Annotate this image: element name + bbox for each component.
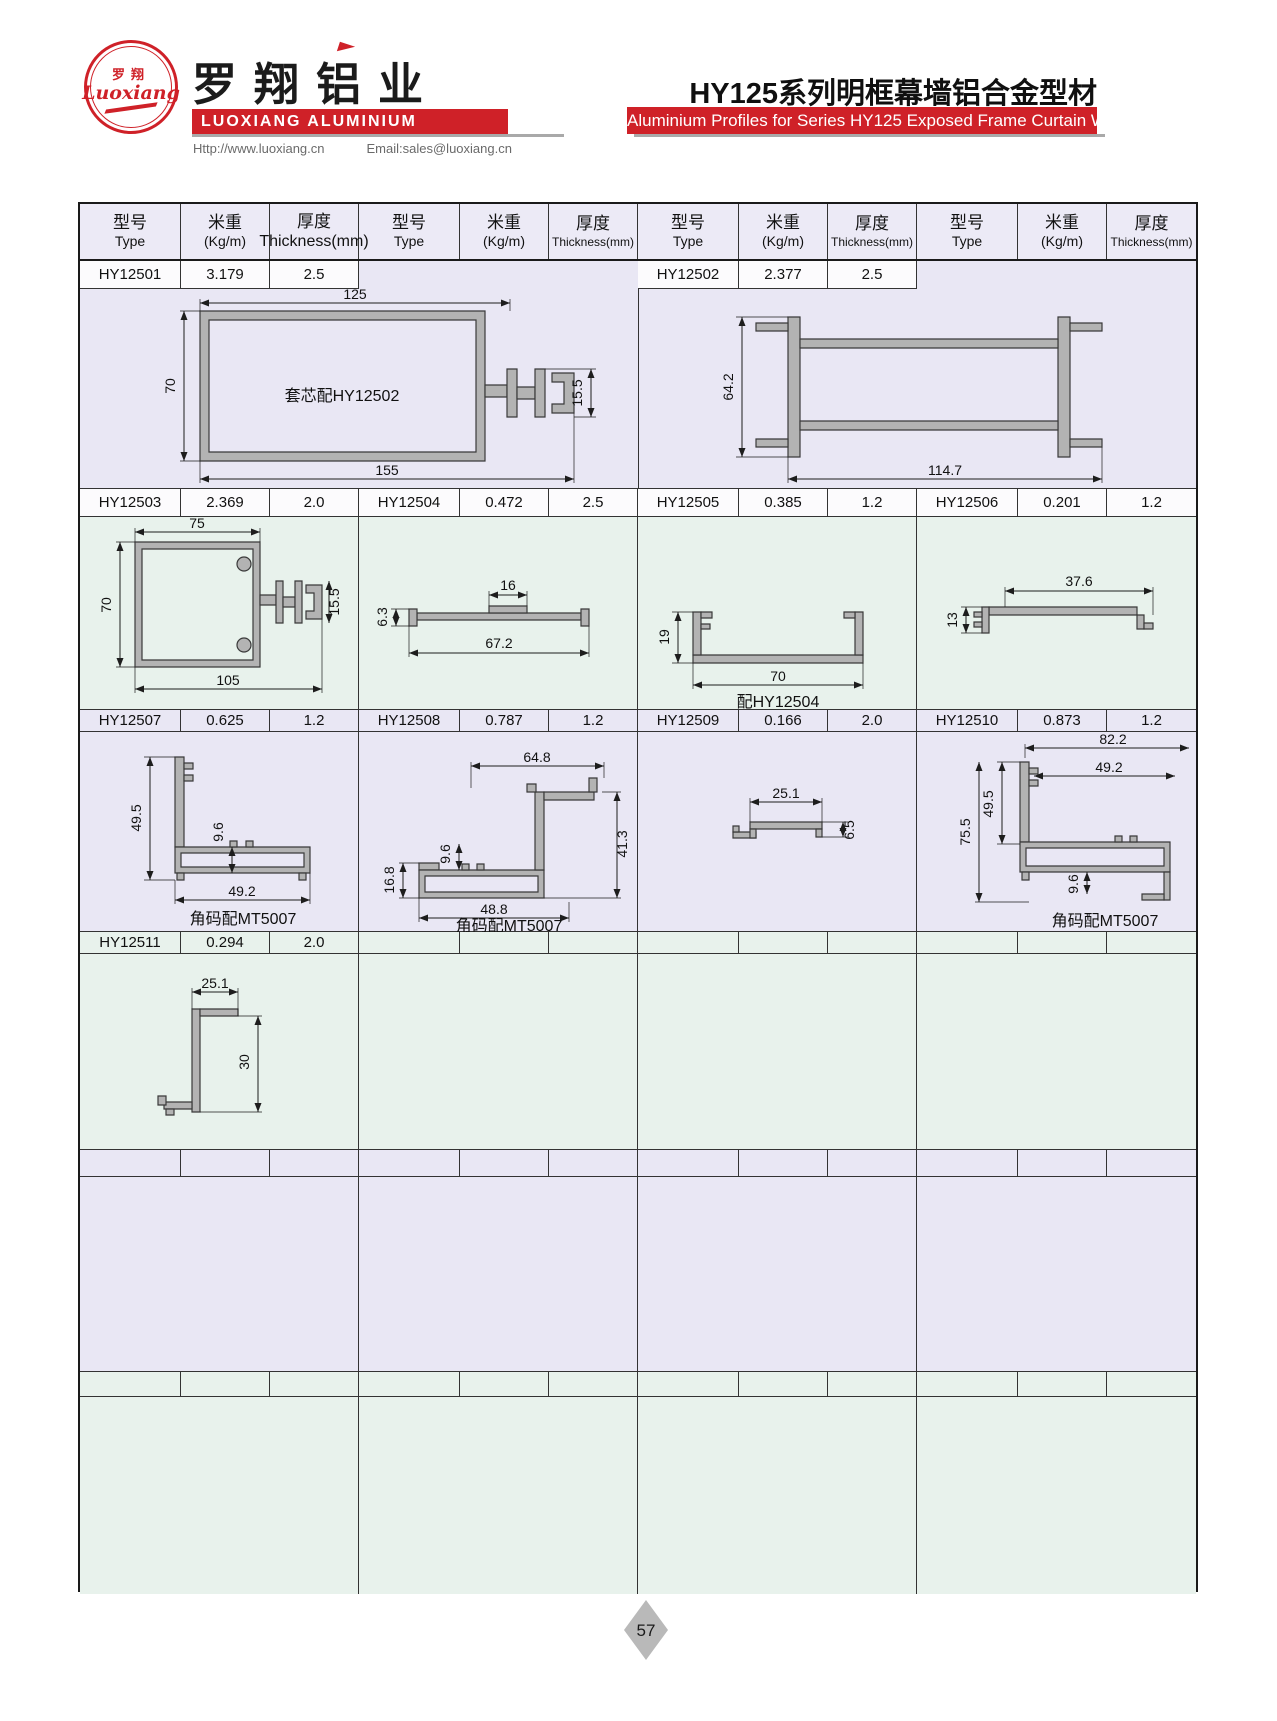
empty-drawing-cell xyxy=(80,1397,359,1594)
drawing-row-4: 25.1 30 xyxy=(80,954,1196,1150)
empty-cell xyxy=(80,1150,181,1176)
header-weight: 米重(Kg/m) xyxy=(1018,204,1107,259)
type-cell: HY12510 xyxy=(917,710,1018,731)
header-thickness: 厚度Thickness(mm) xyxy=(549,204,638,259)
dim-label: 15.5 xyxy=(569,379,585,406)
empty-cell xyxy=(1107,932,1196,953)
dim-label: 25.1 xyxy=(201,975,228,991)
row-hy12501-hy12502: HY12501 3.179 2.5 HY12502 2.377 2.5 xyxy=(80,261,1196,489)
profile-shape xyxy=(419,870,544,898)
header-thickness: 厚度Thickness(mm) xyxy=(270,204,359,259)
empty-cell xyxy=(270,1150,359,1176)
weight-cell: 0.294 xyxy=(181,932,270,953)
empty-drawing-cell xyxy=(638,1397,917,1594)
drawing-hy12511: 25.1 30 xyxy=(80,954,359,1150)
empty-cell xyxy=(460,1150,549,1176)
empty-drawing-cell xyxy=(917,1397,1196,1594)
type-cell: HY12506 xyxy=(917,489,1018,516)
header-weight: 米重(Kg/m) xyxy=(181,204,270,259)
empty-drawing-cell xyxy=(917,1177,1196,1371)
drawing-hy12509: 25.1 6.5 xyxy=(638,732,917,932)
weight-cell: 0.873 xyxy=(1018,710,1107,731)
logo-chinese: 罗翔 xyxy=(112,64,150,83)
dimension-lines: 25.1 6.5 xyxy=(750,785,857,840)
dim-label: 70 xyxy=(770,668,786,684)
empty-cell xyxy=(828,1372,917,1396)
dim-label: 75.5 xyxy=(957,818,973,845)
dim-label: 9.6 xyxy=(210,822,226,842)
drawing-hy12507: 49.5 9.6 49.2 角码配MT5007 xyxy=(80,732,359,932)
profile-note: 角码配MT5007 xyxy=(456,917,563,932)
thickness-cell: 1.2 xyxy=(1107,710,1196,731)
dim-label: 9.6 xyxy=(1065,874,1081,894)
brand-logo: 罗翔 Luoxiang xyxy=(84,40,178,134)
type-cell: HY12503 xyxy=(80,489,181,516)
dim-label: 49.2 xyxy=(1095,759,1122,775)
dim-label: 155 xyxy=(375,462,399,478)
empty-cell xyxy=(739,932,828,953)
empty-cell xyxy=(549,932,638,953)
profile-shape xyxy=(417,613,581,620)
series-title-english: Aluminium Profiles for Series HY125 Expo… xyxy=(627,107,1097,134)
thickness-cell: 2.0 xyxy=(828,710,917,731)
thickness-cell: 1.2 xyxy=(549,710,638,731)
empty-drawing-cell xyxy=(359,1397,638,1594)
dim-label: 125 xyxy=(343,289,367,302)
type-cell: HY12501 xyxy=(80,261,181,289)
dim-label: 114.7 xyxy=(928,462,962,478)
dim-label: 37.6 xyxy=(1065,573,1092,589)
empty-cell xyxy=(917,932,1018,953)
strip-hy12501: HY12501 3.179 2.5 xyxy=(80,261,359,289)
catalog-page: 罗翔 Luoxiang 罗翔铝业 LUOXIANG ALUMINIUM Http… xyxy=(0,0,1277,1721)
empty-drawing-cell xyxy=(80,1177,359,1371)
profile-shape xyxy=(200,311,485,461)
strip-hy12502: HY12502 2.377 2.5 xyxy=(638,261,917,289)
profile-table: 型号Type 米重(Kg/m) 厚度Thickness(mm) 型号Type 米… xyxy=(78,202,1198,1592)
title-shadow-line xyxy=(634,134,1105,137)
dim-label: 16 xyxy=(500,577,516,593)
empty-cell xyxy=(549,1150,638,1176)
header-type: 型号Type xyxy=(917,204,1018,259)
strip-row-6 xyxy=(80,1372,1196,1397)
profile-shape xyxy=(750,822,822,829)
type-cell: HY12511 xyxy=(80,932,181,953)
dim-label: 30 xyxy=(236,1054,252,1070)
dim-label: 105 xyxy=(216,672,240,688)
dim-label: 82.2 xyxy=(1099,732,1126,747)
empty-cell xyxy=(1018,932,1107,953)
empty-cell xyxy=(917,1150,1018,1176)
drawing-hy12503: 75 70 15.5 105 xyxy=(80,517,359,710)
type-cell: HY12504 xyxy=(359,489,460,516)
cell-hy12507: 49.5 9.6 49.2 角码配MT5007 xyxy=(80,732,359,931)
thickness-cell: 1.2 xyxy=(1107,489,1196,516)
dimension-lines: 25.1 30 xyxy=(192,975,262,1112)
thickness-cell: 2.5 xyxy=(270,261,359,289)
empty-cell xyxy=(638,932,739,953)
dim-label: 67.2 xyxy=(485,635,512,651)
dimension-lines: 82.2 49.2 49.5 75.5 9.6 xyxy=(957,732,1189,902)
weight-cell: 0.201 xyxy=(1018,489,1107,516)
cell-hy12504: 6.3 16 67.2 xyxy=(359,517,638,709)
header-type: 型号Type xyxy=(80,204,181,259)
thickness-cell: 2.0 xyxy=(270,932,359,953)
dim-label: 75 xyxy=(189,517,205,531)
brand-contact: Http://www.luoxiang.cn Email:sales@luoxi… xyxy=(193,141,512,156)
email-link[interactable]: Email:sales@luoxiang.cn xyxy=(367,141,512,156)
thickness-cell: 2.5 xyxy=(828,261,917,289)
website-link[interactable]: Http://www.luoxiang.cn xyxy=(193,141,325,156)
dimension-lines: 19 70 xyxy=(656,612,863,689)
header-thickness: 厚度Thickness(mm) xyxy=(828,204,917,259)
strip-row-2: HY12503 2.369 2.0 HY12504 0.472 2.5 HY12… xyxy=(80,489,1196,517)
empty-cell xyxy=(828,932,917,953)
empty-cell xyxy=(1107,1150,1196,1176)
weight-cell: 3.179 xyxy=(181,261,270,289)
table-header-row: 型号Type 米重(Kg/m) 厚度Thickness(mm) 型号Type 米… xyxy=(80,204,1196,261)
empty-drawing-cell xyxy=(359,1177,638,1371)
drawing-row-2: 75 70 15.5 105 xyxy=(80,517,1196,710)
profile-shape xyxy=(1020,762,1029,842)
drawing-hy12505: 19 70 配HY12504 xyxy=(638,517,917,710)
type-cell: HY12508 xyxy=(359,710,460,731)
strip-row-3: HY12507 0.625 1.2 HY12508 0.787 1.2 HY12… xyxy=(80,710,1196,732)
cell-hy12505: 19 70 配HY12504 xyxy=(638,517,917,709)
profile-note: 套芯配HY12502 xyxy=(285,387,400,405)
dim-label: 16.8 xyxy=(381,866,397,893)
profile-shape xyxy=(788,317,800,457)
profile-note: 配HY12504 xyxy=(737,693,820,710)
profile-note: 角码配MT5007 xyxy=(190,910,297,928)
brand-shadow-line xyxy=(192,134,564,137)
drawing-hy12504: 6.3 16 67.2 xyxy=(359,517,638,710)
dim-label: 48.8 xyxy=(480,901,507,917)
drawing-row-6 xyxy=(80,1397,1196,1594)
empty-cell xyxy=(460,932,549,953)
dim-label: 49.5 xyxy=(128,804,144,831)
empty-drawing-cell xyxy=(638,1177,917,1371)
dim-label: 41.3 xyxy=(614,830,630,857)
drawing-row-3: 49.5 9.6 49.2 角码配MT5007 xyxy=(80,732,1196,932)
weight-cell: 0.472 xyxy=(460,489,549,516)
header-weight: 米重(Kg/m) xyxy=(739,204,828,259)
page-number-text: 57 xyxy=(637,1621,656,1640)
drawing-hy12506: 37.6 13 xyxy=(917,517,1196,710)
dim-label: 19 xyxy=(656,629,672,645)
type-cell: HY12507 xyxy=(80,710,181,731)
cell-hy12508: 64.8 9.6 16.8 41.3 48. xyxy=(359,732,638,931)
drawing-hy12501: 125 70 15.5 155 套芯配HY12502 xyxy=(80,289,638,489)
weight-cell: 0.787 xyxy=(460,710,549,731)
strip-row-5 xyxy=(80,1150,1196,1177)
profile-shape xyxy=(989,607,1137,615)
thickness-cell: 1.2 xyxy=(270,710,359,731)
dim-label: 70 xyxy=(98,597,114,613)
empty-drawing-cell xyxy=(359,954,638,1149)
empty-drawing-cell xyxy=(638,954,917,1149)
page-number: 57 xyxy=(623,1600,669,1660)
brand-name-english: LUOXIANG ALUMINIUM xyxy=(192,109,508,134)
dim-label: 6.5 xyxy=(841,820,857,840)
series-title-chinese: HY125系列明框幕墙铝合金型材 xyxy=(689,70,1097,112)
empty-cell xyxy=(359,1150,460,1176)
weight-cell: 2.377 xyxy=(739,261,828,289)
drawing-row-5 xyxy=(80,1177,1196,1372)
dim-label: 6.3 xyxy=(374,607,390,627)
dim-label: 25.1 xyxy=(772,785,799,801)
strip-row-4: HY12511 0.294 2.0 xyxy=(80,932,1196,954)
weight-cell: 2.369 xyxy=(181,489,270,516)
thickness-cell: 2.5 xyxy=(549,489,638,516)
empty-cell xyxy=(739,1150,828,1176)
dim-label: 64.2 xyxy=(720,373,736,400)
cell-hy12506: 37.6 13 xyxy=(917,517,1196,709)
profile-note: 角码配MT5007 xyxy=(1052,912,1159,930)
empty-cell xyxy=(1018,1150,1107,1176)
dim-label: 49.2 xyxy=(228,883,255,899)
profile-shape xyxy=(175,757,184,847)
empty-cell xyxy=(638,1372,739,1396)
type-cell: HY12505 xyxy=(638,489,739,516)
empty-cell xyxy=(460,1372,549,1396)
empty-cell xyxy=(359,932,460,953)
header-type: 型号Type xyxy=(638,204,739,259)
type-cell: HY12502 xyxy=(638,261,739,289)
empty-cell xyxy=(1107,1372,1196,1396)
cell-hy12510: 82.2 49.2 49.5 75.5 9.6 角码配MT5007 xyxy=(917,732,1196,931)
empty-cell xyxy=(638,1150,739,1176)
drawing-hy12502: 64.2 114.7 xyxy=(638,289,1196,489)
drawing-hy12510: 82.2 49.2 49.5 75.5 9.6 角码配MT5007 xyxy=(917,732,1196,932)
dim-label: 49.5 xyxy=(980,790,996,817)
header-thickness: 厚度Thickness(mm) xyxy=(1107,204,1196,259)
dim-label: 13 xyxy=(944,612,960,628)
logo-script: Luoxiang xyxy=(82,83,180,104)
dim-label: 15.5 xyxy=(326,588,342,615)
weight-cell: 0.166 xyxy=(739,710,828,731)
profile-shape xyxy=(693,655,863,663)
weight-cell: 0.385 xyxy=(739,489,828,516)
empty-cell xyxy=(828,1150,917,1176)
cell-hy12509: 25.1 6.5 xyxy=(638,732,917,931)
empty-cell xyxy=(181,1150,270,1176)
empty-cell xyxy=(80,1372,181,1396)
empty-cell xyxy=(739,1372,828,1396)
thickness-cell: 1.2 xyxy=(828,489,917,516)
thickness-cell: 2.0 xyxy=(270,489,359,516)
dim-label: 64.8 xyxy=(523,749,550,765)
empty-cell xyxy=(359,1372,460,1396)
empty-cell xyxy=(1018,1372,1107,1396)
empty-cell xyxy=(270,1372,359,1396)
profile-shape xyxy=(192,1009,200,1112)
dimension-lines: 49.5 9.6 49.2 xyxy=(128,757,310,904)
header-weight: 米重(Kg/m) xyxy=(460,204,549,259)
cell-hy12503: 75 70 15.5 105 xyxy=(80,517,359,709)
header-type: 型号Type xyxy=(359,204,460,259)
cell-hy12511: 25.1 30 xyxy=(80,954,359,1149)
empty-cell xyxy=(549,1372,638,1396)
empty-drawing-cell xyxy=(917,954,1196,1149)
empty-cell xyxy=(917,1372,1018,1396)
brand-name-chinese: 罗翔铝业 xyxy=(192,48,440,113)
dim-label: 9.6 xyxy=(437,844,453,864)
weight-cell: 0.625 xyxy=(181,710,270,731)
empty-cell xyxy=(181,1372,270,1396)
dim-label: 70 xyxy=(162,378,178,394)
type-cell: HY12509 xyxy=(638,710,739,731)
drawing-hy12508: 64.8 9.6 16.8 41.3 48. xyxy=(359,732,638,932)
